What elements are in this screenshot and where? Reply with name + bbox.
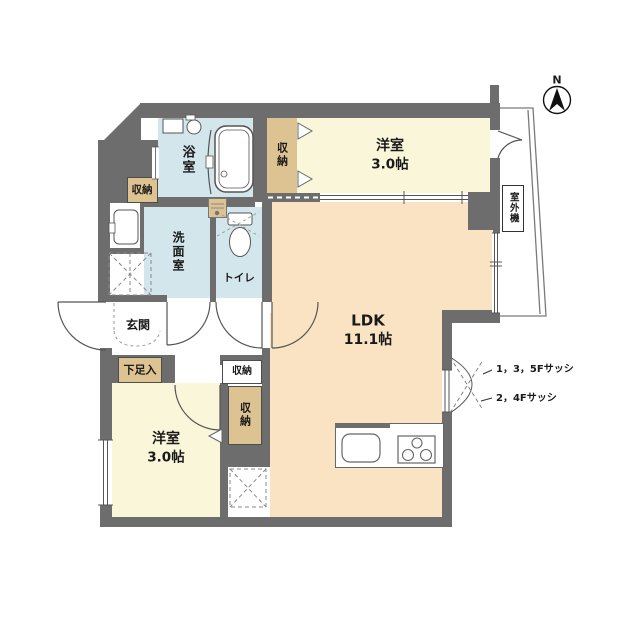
entrance-door-arc (58, 302, 106, 350)
bedroom-south-door-arc (175, 385, 220, 430)
bedroom-north-balcony-opening (490, 130, 500, 158)
room-bedroom-south-size: 3.0帖 (147, 451, 184, 465)
sash-24f-label: 2，4Fサッシ (496, 394, 557, 404)
outdoor-unit-label: 室外機 (508, 192, 518, 224)
toilet-icon (217, 212, 259, 257)
closet-south-label: 収納 (240, 402, 251, 428)
closet-north-door-mark (298, 123, 312, 139)
room-ldk-size: 11.1帖 (344, 333, 393, 347)
balcony-outline (500, 108, 546, 316)
room-bedroom-north-label: 洋室 (376, 139, 404, 153)
laundry-fixtures (109, 210, 151, 295)
ldk-southeast-sash-window (442, 370, 452, 412)
room-toilet-label: トイレ (223, 273, 255, 284)
closet-hall-label: 収納 (232, 367, 252, 377)
ldk-east-window (492, 233, 500, 313)
room-washroom-label: 洗面室 (172, 231, 184, 273)
room-bedroom-south-label: 洋室 (152, 432, 180, 446)
floor-plan: N 浴室 洗面室 トイレ 玄関 収納 収納 収納 収納 下足入 洋室 3.0帖 … (0, 0, 640, 640)
bedroom-south-west-window (100, 440, 112, 505)
toilet-door-arc (216, 302, 262, 348)
kitchen-sink-icon (342, 434, 380, 462)
plan-graphics (0, 0, 640, 640)
ldk-door-arc (272, 302, 318, 348)
washbasin-icon (163, 119, 183, 133)
sash-135f-label: 1，3，5Fサッシ (496, 365, 574, 375)
room-bedroom-north-size: 3.0帖 (371, 158, 408, 172)
bath-door-handle (206, 156, 213, 168)
wall-chamfer (98, 103, 141, 146)
water-heater-marks (211, 204, 224, 215)
closet-north-label: 収納 (277, 142, 288, 168)
washbasin-bowl-icon (187, 120, 201, 134)
room-bath-label: 浴室 (181, 145, 194, 175)
doors (58, 130, 522, 430)
bathtub-icon (215, 126, 253, 192)
sliding-door-track (268, 191, 468, 204)
leader-line (483, 370, 492, 374)
washroom-door-arc (167, 302, 210, 345)
leader-line (481, 398, 492, 401)
refrigerator-space-icon (230, 469, 266, 507)
sash-annotation (450, 357, 492, 413)
room-entrance-label: 玄関 (126, 319, 150, 331)
compass-north-label: N (552, 75, 561, 86)
closet-west-label: 収納 (132, 185, 153, 196)
laundry-pan-icon (109, 253, 151, 295)
washer-icon (114, 210, 138, 244)
closet-south-door-mark (209, 429, 222, 443)
shoe-cabinet-label: 下足入 (124, 365, 157, 376)
room-ldk-label: LDK (351, 314, 385, 329)
balcony-door-arc (498, 131, 522, 158)
kitchen-fixtures (342, 434, 435, 463)
compass-icon (544, 87, 571, 114)
closet-north-door-mark (298, 171, 312, 187)
